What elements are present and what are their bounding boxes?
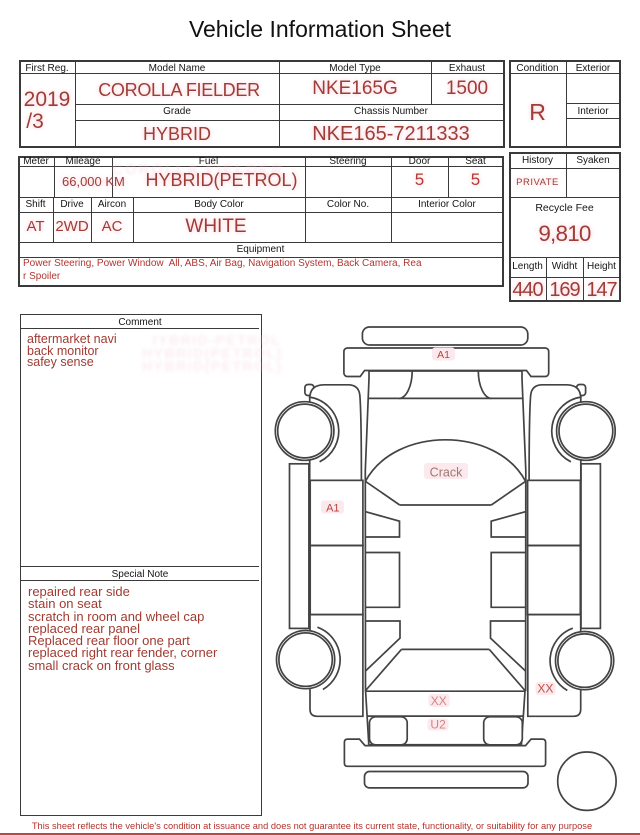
svg-text:XX: XX — [431, 694, 447, 708]
svg-text:XX: XX — [537, 682, 553, 696]
svg-text:Crack: Crack — [430, 466, 463, 480]
svg-text:A1: A1 — [437, 349, 450, 361]
svg-text:U2: U2 — [430, 718, 446, 732]
svg-text:A1: A1 — [326, 503, 339, 515]
